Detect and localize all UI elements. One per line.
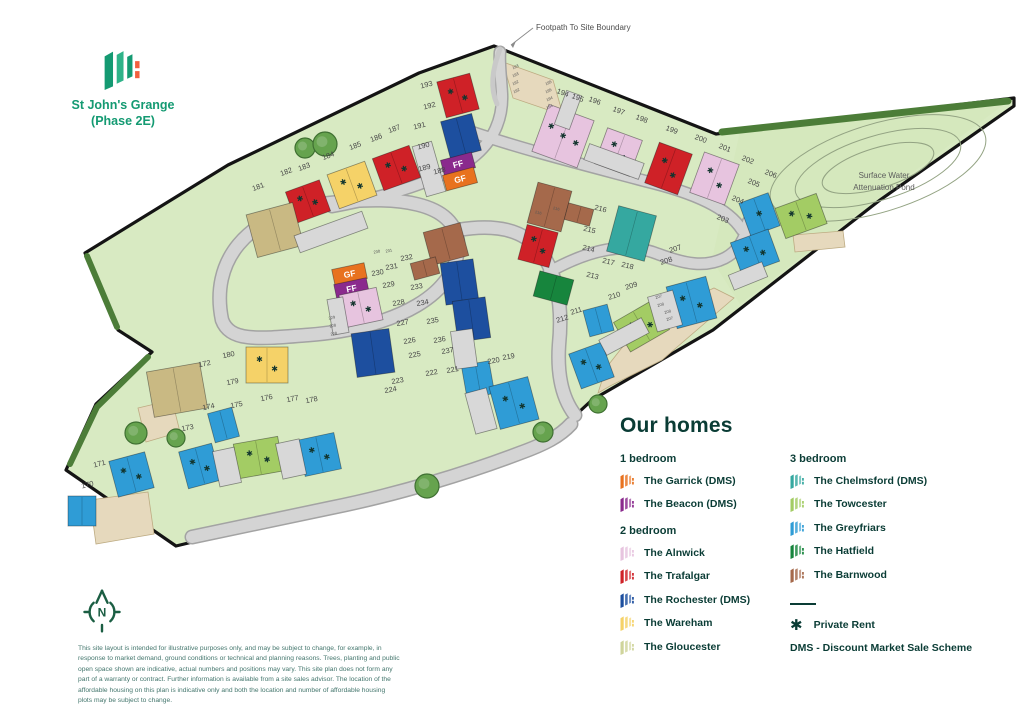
legend-item-greyfriars: The Greyfriars <box>790 516 1010 540</box>
house-block-existing <box>146 363 207 418</box>
legend-item-alnwick: The Alnwick <box>620 541 790 565</box>
legend-item-name: The Gloucester <box>644 641 720 653</box>
legend-item-rochester: The Rochester (DMS) <box>620 588 790 612</box>
legend-item-name: The Trafalgar <box>644 570 710 582</box>
footpath-label: Footpath To Site Boundary <box>536 23 631 32</box>
private-rent-symbol: ✱ <box>790 616 803 634</box>
footpath-annotation: Footpath To Site Boundary <box>511 23 631 48</box>
legend-private-rent: ✱Private Rent <box>790 613 1010 637</box>
house-type-icon <box>620 473 635 489</box>
house-type-icon <box>620 615 635 631</box>
disclaimer-text: This site layout is intended for illustr… <box>78 644 400 706</box>
legend-section-heading: 1 bedroom <box>620 453 790 465</box>
legend-item-wareham: The Wareham <box>620 612 790 636</box>
legend-item-beacon: The Beacon (DMS) <box>620 493 790 517</box>
legend-item-trafalgar: The Trafalgar <box>620 565 790 589</box>
legend-item-name: The Chelmsford (DMS) <box>814 475 927 487</box>
legend-dms-note: DMS - Discount Market Sale Scheme <box>790 642 1010 654</box>
house-type-icon <box>790 543 805 559</box>
brand-block: St John's Grange (Phase 2E) <box>62 48 184 129</box>
legend-section-heading: 3 bedroom <box>790 453 1010 465</box>
legend-item-name: The Barnwood <box>814 569 887 581</box>
compass-north-letter: N <box>98 606 107 620</box>
legend-item-name: The Garrick (DMS) <box>644 475 736 487</box>
house-block-rochester <box>351 329 395 378</box>
site-title: St John's Grange <box>62 98 184 114</box>
house-block-wareham: ✱✱ <box>246 347 288 383</box>
brand-logo-icon <box>103 48 143 90</box>
house-type-icon <box>790 520 805 536</box>
legend-title: Our homes <box>620 414 1012 438</box>
legend-divider <box>790 603 816 605</box>
legend-item-name: The Beacon (DMS) <box>644 498 737 510</box>
house-type-icon <box>790 473 805 489</box>
house-type-icon <box>620 496 635 512</box>
legend-item-name: The Greyfriars <box>814 522 886 534</box>
pond-label-line2: Attenuation Pond <box>853 183 914 192</box>
legend-section-heading: 2 bedroom <box>620 525 790 537</box>
legend-item-name: The Wareham <box>644 617 712 629</box>
house-block-greyfriars <box>68 496 96 526</box>
house-type-icon <box>790 567 805 583</box>
legend-item-name: The Hatfield <box>814 545 874 557</box>
legend-item-gloucester: The Gloucester <box>620 635 790 659</box>
house-type-icon <box>790 496 805 512</box>
legend-item-name: The Alnwick <box>644 547 705 559</box>
house-block-rochester <box>440 259 479 305</box>
site-subtitle: (Phase 2E) <box>62 114 184 130</box>
legend-item-hatfield: The Hatfield <box>790 540 1010 564</box>
garage-block <box>450 329 477 370</box>
site-plan-page: ✱✱FFGF✱✱✱✱✱✱✱✱✱✱✱✱✱✱✱✱✱✱✱✱✱✱✱✱✱✱✱✱GFFF✱✱… <box>0 0 1024 728</box>
legend-item-chelmsford: The Chelmsford (DMS) <box>790 469 1010 493</box>
house-type-icon <box>620 639 635 655</box>
legend-item-barnwood: The Barnwood <box>790 563 1010 587</box>
private-rent-star: ✱ <box>271 364 278 373</box>
private-rent-star: ✱ <box>256 355 263 364</box>
house-type-icon <box>620 592 635 608</box>
legend-column-1: 1 bedroom The Garrick (DMS) The Beacon (… <box>620 444 790 659</box>
pond-label-line1: Surface Water <box>859 171 910 180</box>
house-type-icon <box>620 568 635 584</box>
legend-item-name: The Rochester (DMS) <box>644 594 750 606</box>
legend-column-2: 3 bedroom The Chelmsford (DMS) The Towce… <box>790 444 1010 659</box>
legend-item-towcester: The Towcester <box>790 493 1010 517</box>
compass-rose-icon: N <box>78 588 126 636</box>
legend-item-name: The Towcester <box>814 498 887 510</box>
legend-item-garrick: The Garrick (DMS) <box>620 469 790 493</box>
legend-panel: Our homes 1 bedroom The Garrick (DMS) Th… <box>620 414 1012 659</box>
house-block-towcester: ✱✱ <box>233 436 283 478</box>
house-type-icon <box>620 545 635 561</box>
private-rent-label: Private Rent <box>814 619 875 631</box>
